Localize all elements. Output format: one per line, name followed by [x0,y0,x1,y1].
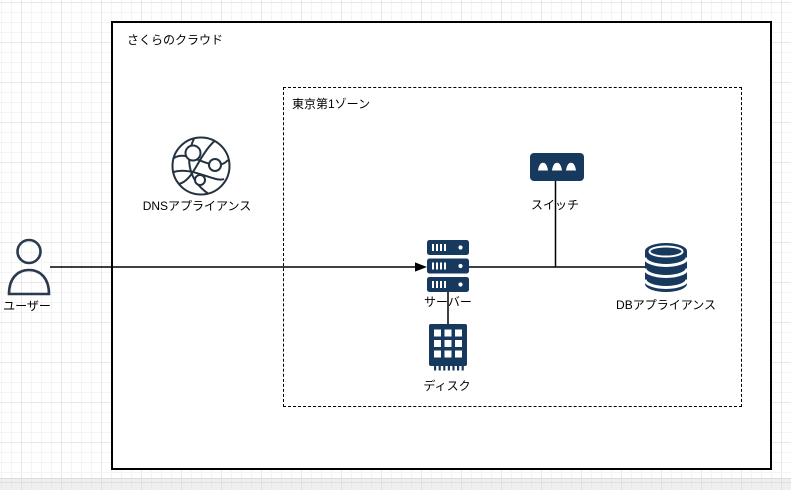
node-user-label: ユーザー [3,297,51,314]
disk-chip-icon [428,324,468,371]
network-switch-icon [530,153,584,181]
node-switch[interactable]: スイッチ [530,153,584,181]
diagram-canvas[interactable]: さくらのクラウド 東京第1ゾーン ユーザー DNSアプライアンス [0,0,791,490]
node-disk[interactable]: ディスク [428,324,468,371]
person-outline-icon [7,237,51,297]
node-server-label: サーバー [424,293,472,310]
node-dns[interactable]: DNSアプライアンス [170,136,232,196]
node-db-label: DBアプライアンス [616,296,716,313]
arrowhead-user-to-server [415,262,427,271]
network-globe-icon [170,136,232,196]
node-switch-label: スイッチ [531,196,579,213]
server-stack-icon [427,240,469,292]
node-disk-label: ディスク [423,377,470,394]
node-server[interactable]: サーバー [427,240,469,292]
database-cylinder-icon [644,242,688,293]
node-db[interactable]: DBアプライアンス [644,242,688,293]
node-dns-label: DNSアプライアンス [143,197,252,214]
node-user[interactable]: ユーザー [7,237,51,297]
